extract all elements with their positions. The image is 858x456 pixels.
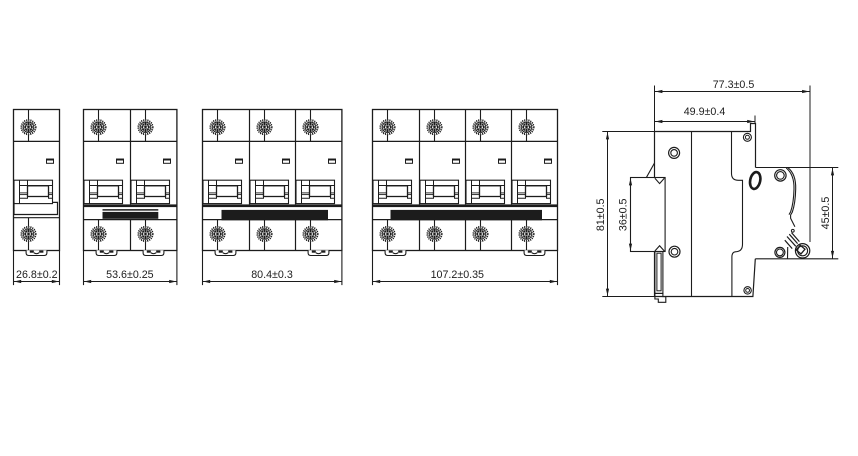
svg-text:81±0.5: 81±0.5 bbox=[595, 198, 607, 231]
svg-text:80.4±0.3: 80.4±0.3 bbox=[251, 269, 293, 281]
svg-text:26.8±0.2: 26.8±0.2 bbox=[16, 269, 58, 281]
svg-text:77.3±0.5: 77.3±0.5 bbox=[713, 79, 755, 91]
svg-text:53.6±0.25: 53.6±0.25 bbox=[106, 269, 154, 281]
svg-text:49.9±0.4: 49.9±0.4 bbox=[684, 106, 726, 118]
svg-text:36±0.5: 36±0.5 bbox=[617, 198, 629, 231]
svg-text:45±0.5: 45±0.5 bbox=[820, 197, 832, 230]
svg-text:107.2±0.35: 107.2±0.35 bbox=[431, 269, 484, 281]
